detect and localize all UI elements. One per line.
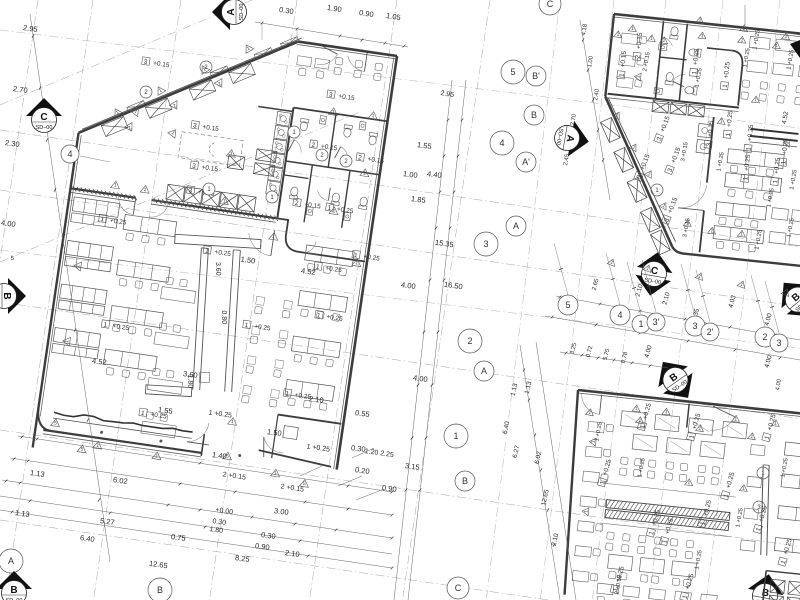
- svg-text:3: 3: [692, 321, 697, 331]
- svg-text:5: 5: [565, 300, 570, 310]
- svg-text:0.80: 0.80: [220, 310, 227, 324]
- svg-text:B: B: [10, 585, 17, 596]
- svg-text:C: C: [455, 583, 462, 593]
- svg-text:3: 3: [483, 239, 488, 249]
- svg-text:2': 2': [707, 327, 714, 337]
- svg-text:SD–00: SD–00: [36, 125, 53, 131]
- svg-text:5: 5: [510, 67, 515, 77]
- svg-text:SD–00: SD–00: [239, 4, 245, 21]
- svg-text:4: 4: [499, 138, 504, 148]
- svg-text:C: C: [40, 112, 47, 123]
- svg-text:B: B: [531, 110, 537, 120]
- svg-text:2: 2: [467, 336, 472, 346]
- svg-text:3.60: 3.60: [214, 262, 221, 276]
- svg-text:2: 2: [762, 332, 767, 342]
- svg-text:B: B: [1, 292, 12, 299]
- svg-text:A: A: [513, 221, 519, 231]
- svg-text:1: 1: [638, 319, 643, 329]
- svg-text:B: B: [462, 476, 468, 486]
- svg-text:4: 4: [617, 310, 622, 320]
- svg-text:4: 4: [67, 149, 72, 159]
- svg-text:C: C: [547, 0, 554, 9]
- svg-text:A: A: [481, 366, 487, 376]
- svg-text:A: A: [226, 8, 237, 15]
- svg-text:3: 3: [776, 338, 781, 348]
- svg-text:B': B': [532, 71, 540, 81]
- svg-text:3': 3': [653, 317, 660, 327]
- svg-text:A': A': [522, 157, 530, 167]
- svg-text:A: A: [8, 556, 14, 566]
- svg-text:1: 1: [453, 431, 458, 441]
- svg-text:B: B: [157, 585, 163, 595]
